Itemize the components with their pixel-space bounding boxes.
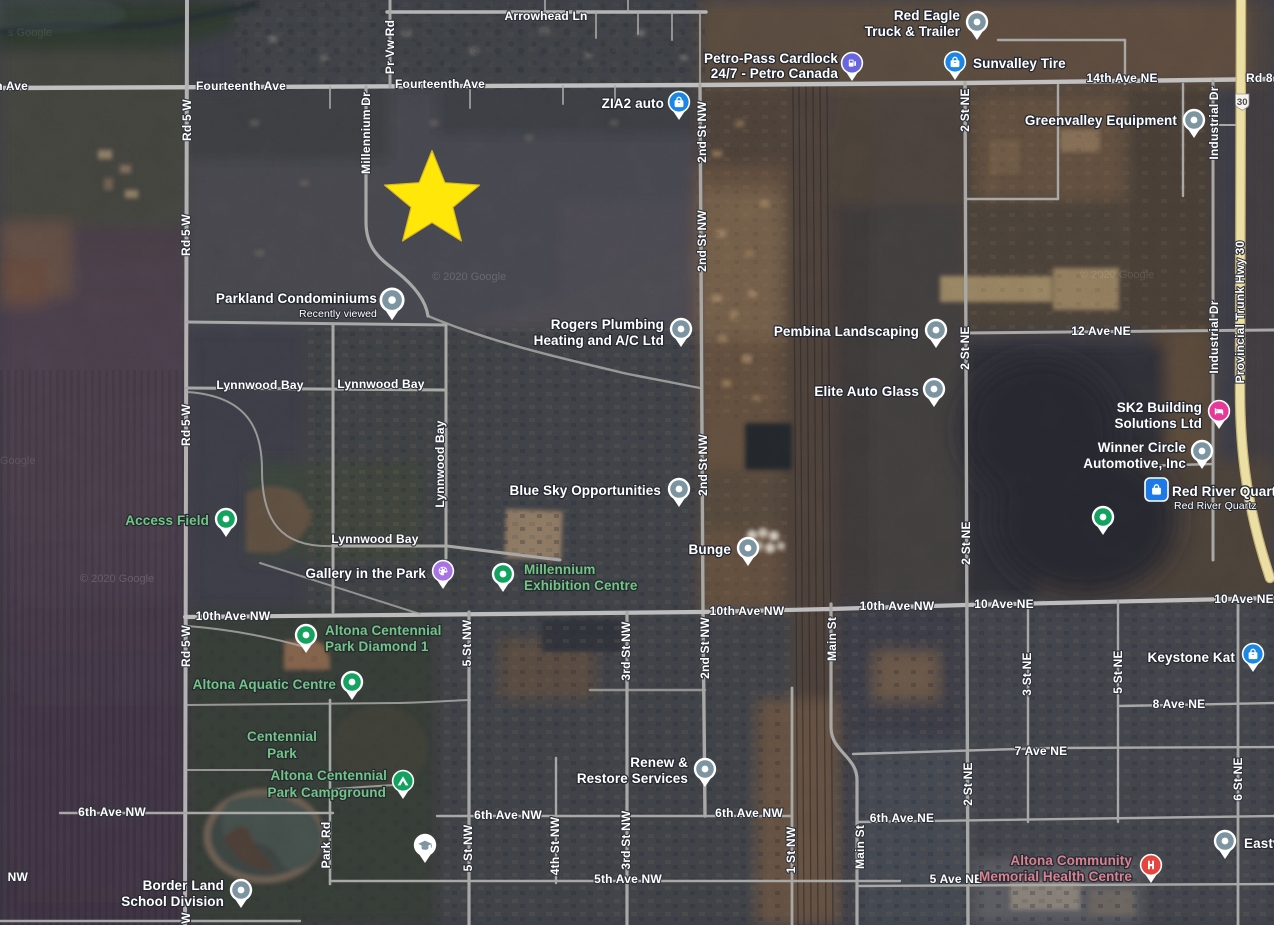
svg-text:Blue Sky Opportunities: Blue Sky Opportunities — [510, 483, 661, 498]
svg-text:4th St NW: 4th St NW — [548, 816, 562, 875]
svg-text:Recently viewed: Recently viewed — [299, 308, 377, 320]
svg-text:Red Eagle: Red Eagle — [894, 8, 961, 23]
svg-text:Lynnwood Bay: Lynnwood Bay — [337, 377, 424, 391]
svg-text:Eastvie: Eastvie — [1244, 836, 1274, 851]
svg-text:Rd 8: Rd 8 — [1246, 71, 1273, 85]
svg-text:2nd St NW: 2nd St NW — [695, 101, 709, 163]
svg-text:3rd St NW: 3rd St NW — [619, 621, 633, 681]
svg-text:Fourteenth Ave: Fourteenth Ave — [395, 77, 485, 91]
svg-text:6th Ave NW: 6th Ave NW — [474, 808, 542, 822]
svg-text:n Ave: n Ave — [0, 79, 28, 93]
svg-text:Rd 5 W: Rd 5 W — [179, 404, 193, 446]
svg-text:ZIA2 auto: ZIA2 auto — [602, 96, 664, 111]
svg-text:Petro-Pass Cardlock: Petro-Pass Cardlock — [704, 51, 838, 66]
svg-text:6 St NE: 6 St NE — [1231, 757, 1245, 800]
svg-text:Pembina Landscaping: Pembina Landscaping — [774, 324, 919, 339]
svg-text:6th Ave NW: 6th Ave NW — [715, 806, 783, 820]
svg-text:Pr Vw Rd: Pr Vw Rd — [383, 20, 397, 74]
svg-text:Red River Quartz: Red River Quartz — [1172, 484, 1274, 499]
svg-text:14th Ave NE: 14th Ave NE — [1086, 71, 1157, 85]
svg-text:Main St: Main St — [825, 617, 839, 661]
svg-text:5 St NE: 5 St NE — [1111, 650, 1125, 693]
svg-text:2 St NE: 2 St NE — [959, 521, 973, 564]
svg-text:Restore Services: Restore Services — [577, 771, 688, 786]
svg-text:Millennium: Millennium — [524, 562, 596, 577]
svg-text:2nd St NW: 2nd St NW — [696, 434, 710, 496]
svg-text:Lynnwood Bay: Lynnwood Bay — [216, 378, 303, 392]
svg-text:2nd St NW: 2nd St NW — [695, 210, 709, 272]
svg-text:Lynnwood Bay: Lynnwood Bay — [433, 420, 447, 507]
svg-text:Park Diamond 1: Park Diamond 1 — [325, 639, 429, 654]
svg-text:1 St NW: 1 St NW — [784, 826, 798, 873]
svg-text:10th Ave NW: 10th Ave NW — [196, 609, 271, 623]
svg-text:2 St NE: 2 St NE — [958, 88, 972, 131]
svg-text:Lynnwood Bay: Lynnwood Bay — [331, 532, 418, 546]
svg-text:© 2020 Google: © 2020 Google — [1080, 269, 1154, 281]
svg-text:Border Land: Border Land — [143, 878, 224, 893]
svg-text:6th Ave NW: 6th Ave NW — [78, 805, 146, 819]
svg-text:12 Ave NE: 12 Ave NE — [1071, 324, 1131, 338]
svg-text:Park Campground: Park Campground — [267, 785, 386, 800]
svg-text:5 Ave NE: 5 Ave NE — [930, 872, 983, 886]
svg-text:School Division: School Division — [121, 894, 224, 909]
svg-text:2 St NE: 2 St NE — [961, 762, 975, 805]
svg-text:Truck & Trailer: Truck & Trailer — [865, 24, 961, 39]
svg-text:Centennial: Centennial — [247, 729, 317, 744]
svg-text:Altona Community: Altona Community — [1010, 853, 1132, 868]
svg-text:Red River Quartz: Red River Quartz — [1174, 500, 1257, 512]
svg-text:Elite Auto Glass: Elite Auto Glass — [814, 384, 919, 399]
svg-text:Renew &: Renew & — [630, 755, 688, 770]
svg-text:W: W — [179, 912, 193, 924]
svg-text:5 St NW: 5 St NW — [460, 619, 474, 666]
svg-text:10th Ave NW: 10th Ave NW — [710, 604, 785, 618]
svg-text:3rd St NW: 3rd St NW — [619, 810, 633, 870]
svg-text:Heating and A/C Ltd: Heating and A/C Ltd — [534, 333, 664, 348]
svg-text:Gallery in the Park: Gallery in the Park — [306, 566, 427, 581]
svg-text:NW: NW — [8, 870, 29, 884]
svg-text:Altona Centennial: Altona Centennial — [325, 623, 441, 638]
svg-text:3 St NE: 3 St NE — [1020, 652, 1034, 695]
svg-text:Google: Google — [0, 455, 35, 467]
svg-text:© 2020 Google: © 2020 Google — [80, 573, 154, 585]
svg-text:5th Ave NW: 5th Ave NW — [594, 872, 662, 886]
svg-text:10 Ave NE: 10 Ave NE — [1214, 592, 1274, 606]
svg-text:10 Ave NE: 10 Ave NE — [974, 597, 1034, 611]
svg-text:Solutions Ltd: Solutions Ltd — [1114, 416, 1202, 431]
svg-text:Arrowhead Ln: Arrowhead Ln — [504, 9, 587, 23]
svg-text:Park Rd: Park Rd — [319, 822, 333, 869]
svg-text:Rd 5 W: Rd 5 W — [180, 99, 194, 141]
svg-text:Fourteenth Ave: Fourteenth Ave — [196, 79, 286, 93]
svg-text:2 St NE: 2 St NE — [958, 326, 972, 369]
svg-text:24/7 - Petro Canada: 24/7 - Petro Canada — [711, 66, 839, 81]
svg-text:2nd St NW: 2nd St NW — [698, 617, 712, 679]
svg-text:SK2 Building: SK2 Building — [1117, 400, 1202, 415]
svg-text:Exhibition Centre: Exhibition Centre — [524, 578, 638, 593]
svg-text:Provincial Trunk Hwy 30: Provincial Trunk Hwy 30 — [1233, 241, 1247, 384]
svg-text:Winner Circle: Winner Circle — [1098, 440, 1187, 455]
svg-text:Industrial Dr: Industrial Dr — [1207, 300, 1221, 373]
svg-text:Main St: Main St — [853, 825, 867, 869]
svg-text:Rd 5 W: Rd 5 W — [179, 214, 193, 256]
svg-text:Rogers Plumbing: Rogers Plumbing — [551, 317, 664, 332]
svg-text:7 Ave NE: 7 Ave NE — [1015, 744, 1068, 758]
svg-text:6th Ave NE: 6th Ave NE — [870, 811, 934, 825]
svg-text:Millennium Dr: Millennium Dr — [359, 92, 373, 174]
svg-text:5 St NW: 5 St NW — [461, 824, 475, 871]
svg-text:Altona Centennial: Altona Centennial — [271, 768, 387, 783]
svg-text:10th Ave NW: 10th Ave NW — [860, 599, 935, 613]
svg-text:30: 30 — [1237, 97, 1248, 108]
svg-text:Industrial Dr: Industrial Dr — [1207, 86, 1221, 159]
svg-text:Automotive, Inc: Automotive, Inc — [1083, 456, 1186, 471]
svg-text:Sunvalley Tire: Sunvalley Tire — [973, 56, 1066, 71]
svg-text:Park: Park — [267, 746, 297, 761]
svg-text:Altona Aquatic Centre: Altona Aquatic Centre — [193, 677, 337, 692]
svg-text:s Google: s Google — [8, 27, 52, 39]
svg-text:Rd 5 W: Rd 5 W — [179, 625, 193, 667]
svg-text:Greenvalley Equipment: Greenvalley Equipment — [1025, 113, 1178, 128]
svg-text:Memorial Health Centre: Memorial Health Centre — [979, 869, 1132, 884]
svg-text:Bunge: Bunge — [689, 542, 732, 557]
svg-text:Keystone Kat: Keystone Kat — [1148, 650, 1236, 665]
svg-text:Parkland Condominiums: Parkland Condominiums — [216, 291, 377, 306]
svg-text:Access Field: Access Field — [125, 513, 209, 528]
svg-text:8 Ave NE: 8 Ave NE — [1153, 697, 1206, 711]
svg-text:© 2020 Google: © 2020 Google — [432, 271, 506, 283]
